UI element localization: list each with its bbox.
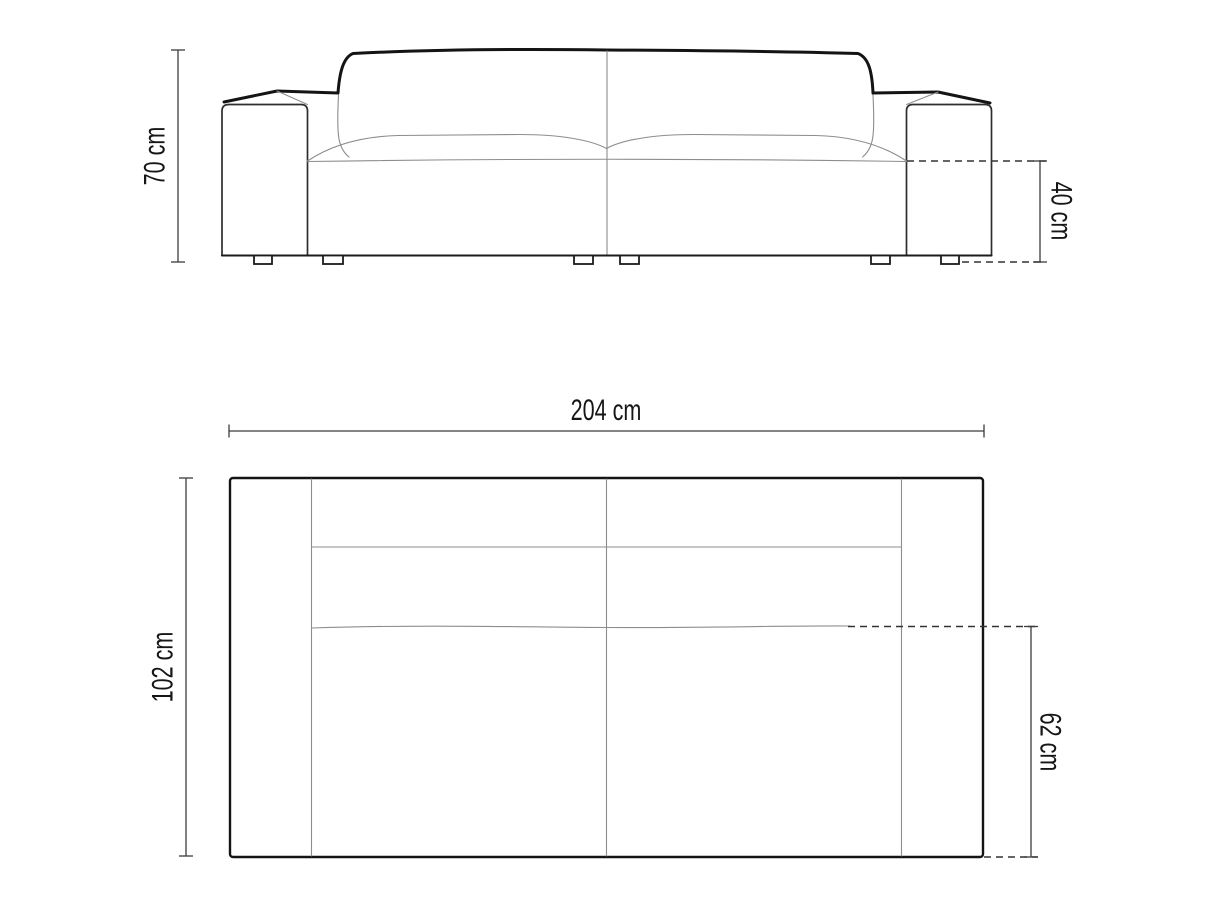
foot: [254, 256, 272, 265]
diagram-svg: 70 cm 40 cm 204 cm: [0, 0, 1214, 911]
sofa-dimension-diagram: 70 cm 40 cm 204 cm: [0, 0, 1214, 911]
front-height-label: 70 cm: [137, 127, 171, 186]
right-armrest: [907, 105, 992, 256]
foot: [574, 256, 593, 265]
foot: [941, 256, 959, 265]
foot: [871, 256, 890, 265]
backrest-right-edge: [863, 95, 874, 157]
top-view: 204 cm 102 cm: [145, 392, 1068, 857]
left-armrest: [222, 105, 308, 256]
front-sofa-drawing: [222, 50, 992, 264]
foot: [620, 256, 639, 265]
top-depth-label: 102 cm: [145, 632, 179, 703]
front-seat-height-dimension: 40 cm: [907, 161, 1079, 262]
front-view: 70 cm 40 cm: [137, 50, 1079, 264]
foot: [323, 256, 343, 265]
top-seat-depth-label: 62 cm: [1034, 713, 1068, 772]
front-seat-height-label: 40 cm: [1045, 182, 1079, 241]
top-width-dimension: 204 cm: [229, 392, 984, 437]
left-seat-cushion: [308, 135, 607, 162]
backrest-left-edge: [338, 95, 349, 157]
top-width-label: 204 cm: [571, 392, 642, 426]
top-sofa-drawing: [230, 478, 983, 857]
top-depth-dimension: 102 cm: [145, 478, 193, 856]
front-height-dimension: 70 cm: [137, 50, 185, 262]
right-seat-cushion: [607, 135, 907, 162]
